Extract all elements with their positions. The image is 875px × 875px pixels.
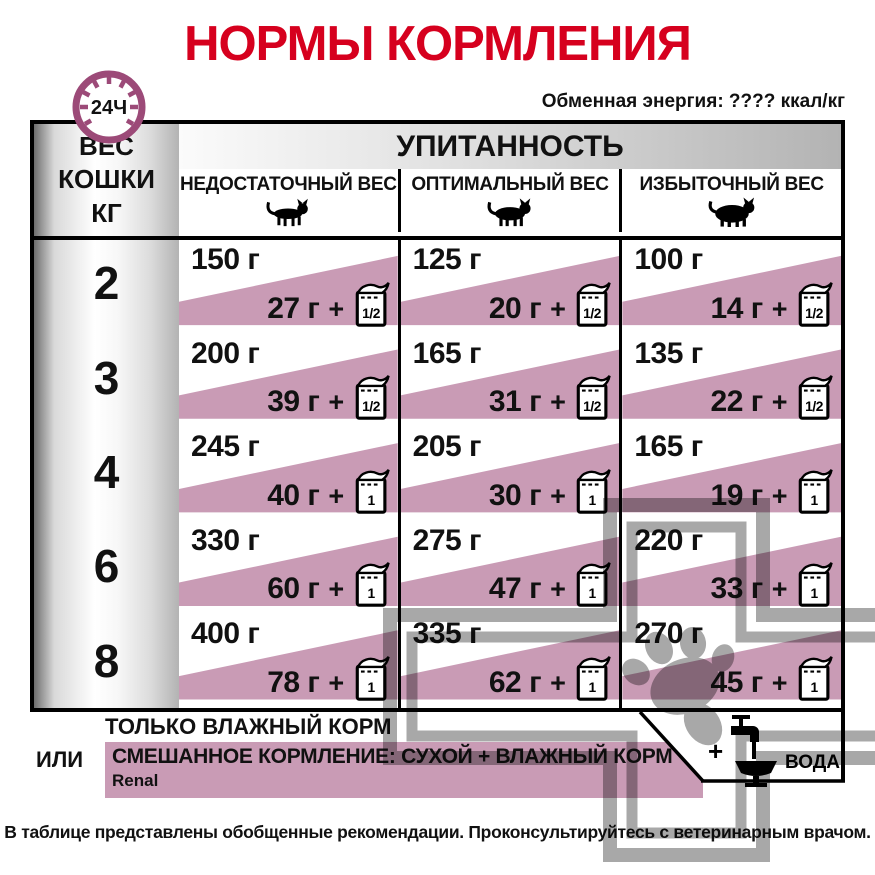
pouch-icon: 1: [796, 561, 834, 607]
column-label: ОПТИМАЛЬНЫЙ ВЕС: [411, 174, 608, 196]
header-divider: [34, 236, 841, 240]
plus-sign: +: [550, 481, 565, 513]
dry-amount: 205 г: [413, 430, 481, 464]
mixed-line: 33 г + 1: [711, 561, 834, 606]
pouch-icon: 1: [574, 655, 612, 701]
weight-value: 8: [34, 614, 179, 708]
pouch-icon: 1: [796, 468, 834, 514]
feeding-cell: 125 г 20 г + 1/2: [398, 240, 620, 334]
mixed-line: 60 г + 1: [267, 561, 390, 606]
mixed-line: 22 г + 1/2: [711, 374, 834, 419]
mixed-line: 19 г + 1: [711, 468, 834, 513]
water-corner: + ВОДА: [635, 712, 845, 807]
plus-sign: +: [328, 574, 343, 606]
feeding-cell: 275 г 47 г + 1: [398, 521, 620, 615]
wet-amount: 39 г: [267, 385, 319, 419]
wet-amount: 40 г: [267, 479, 319, 513]
wet-amount: 45 г: [711, 666, 763, 700]
pouch-icon: 1: [574, 468, 612, 514]
wet-amount: 60 г: [267, 572, 319, 606]
pouch-count: 1: [589, 493, 597, 508]
table-row: 200 г 39 г + 1/2 165 г: [179, 334, 841, 428]
mixed-line: 47 г + 1: [489, 561, 612, 606]
mixed-line: 14 г + 1/2: [711, 281, 834, 326]
column-label: ИЗБЫТОЧНЫЙ ВЕС: [640, 174, 824, 196]
dry-amount: 335 г: [413, 617, 481, 651]
weight-value: 4: [34, 425, 179, 519]
weight-value: 2: [34, 236, 179, 330]
pouch-count: 1/2: [584, 305, 603, 320]
feeding-cell: 335 г 62 г + 1: [398, 614, 620, 708]
plus-sign: +: [550, 668, 565, 700]
dry-amount: 165 г: [413, 337, 481, 371]
metabolic-energy-note: Обменная энергия: ???? ккал/кг: [542, 91, 845, 113]
pouch-icon: 1/2: [796, 374, 834, 420]
wet-amount: 31 г: [489, 385, 541, 419]
column-label: НЕДОСТАТОЧНЫЙ ВЕС: [180, 174, 397, 196]
feeding-cell: 135 г 22 г + 1/2: [619, 334, 841, 428]
pouch-icon: 1/2: [574, 374, 612, 420]
weight-values: 2 3 4 6 8: [34, 236, 179, 708]
table-row: 400 г 78 г + 1 335 г: [179, 614, 841, 708]
thin-cat-icon: [260, 197, 316, 227]
plus-sign: +: [550, 294, 565, 326]
wet-amount: 20 г: [489, 292, 541, 326]
feeding-guide-page: НОРМЫ КОРМЛЕНИЯ Обменная энергия: ???? к…: [0, 0, 875, 875]
pouch-icon: 1: [796, 655, 834, 701]
dry-amount: 330 г: [191, 524, 259, 558]
wet-amount: 62 г: [489, 666, 541, 700]
mixed-line: 30 г + 1: [489, 468, 612, 513]
plus-sign: +: [772, 294, 787, 326]
weight-value: 3: [34, 330, 179, 424]
dry-amount: 270 г: [634, 617, 702, 651]
disclaimer-text: В таблице представлены обобщенные рекоме…: [0, 822, 875, 843]
pouch-count: 1: [810, 586, 818, 601]
wet-amount: 14 г: [711, 292, 763, 326]
feeding-cell: 400 г 78 г + 1: [179, 614, 398, 708]
pouch-count: 1: [367, 586, 375, 601]
pouch-icon: 1: [353, 561, 391, 607]
table-row: 150 г 27 г + 1/2 125 г: [179, 240, 841, 334]
table-rows: 150 г 27 г + 1/2 125 г: [179, 240, 841, 708]
pouch-count: 1/2: [362, 399, 381, 414]
feeding-table: ВЕС КОШКИ КГ 2 3 4 6 8 УПИТАННОСТЬ НЕДОС…: [30, 120, 845, 712]
pouch-count: 1: [589, 680, 597, 695]
clock-label: 24Ч: [91, 97, 127, 119]
dry-amount: 150 г: [191, 243, 259, 277]
column-overweight: ИЗБЫТОЧНЫЙ ВЕС: [619, 169, 841, 232]
plus-sign: +: [328, 668, 343, 700]
clock-24h-icon: 24Ч: [64, 62, 154, 152]
wet-amount: 27 г: [267, 292, 319, 326]
feeding-cell: 200 г 39 г + 1/2: [179, 334, 398, 428]
feeding-cell: 150 г 27 г + 1/2: [179, 240, 398, 334]
mixed-line: 62 г + 1: [489, 655, 612, 700]
plus-sign: +: [772, 574, 787, 606]
table-row: 330 г 60 г + 1 275 г: [179, 521, 841, 615]
mixed-line: 27 г + 1/2: [267, 281, 390, 326]
pouch-icon: 1: [353, 468, 391, 514]
table-row: 245 г 40 г + 1 205 г: [179, 427, 841, 521]
pouch-count: 1/2: [805, 305, 824, 320]
plus-sign: +: [772, 481, 787, 513]
dry-amount: 275 г: [413, 524, 481, 558]
column-headers: НЕДОСТАТОЧНЫЙ ВЕС ОПТИМ: [179, 169, 841, 232]
pouch-count: 1: [367, 493, 375, 508]
weight-value: 6: [34, 519, 179, 613]
feeding-cell: 330 г 60 г + 1: [179, 521, 398, 615]
dry-amount: 165 г: [634, 430, 702, 464]
dry-amount: 245 г: [191, 430, 259, 464]
plus-sign: +: [772, 668, 787, 700]
mixed-line: 39 г + 1/2: [267, 374, 390, 419]
column-underweight: НЕДОСТАТОЧНЫЙ ВЕС: [179, 169, 398, 232]
pouch-icon: 1/2: [574, 281, 612, 327]
plus-sign: +: [550, 387, 565, 419]
mixed-line: 20 г + 1/2: [489, 281, 612, 326]
feeding-cell: 220 г 33 г + 1: [619, 521, 841, 615]
column-optimal: ОПТИМАЛЬНЫЙ ВЕС: [398, 169, 620, 232]
wet-amount: 22 г: [711, 385, 763, 419]
pouch-icon: 1/2: [353, 281, 391, 327]
wet-amount: 33 г: [711, 572, 763, 606]
wet-only-label: ТОЛЬКО ВЛАЖНЫЙ КОРМ: [105, 714, 392, 740]
dry-amount: 400 г: [191, 617, 259, 651]
pouch-count: 1: [810, 493, 818, 508]
feeding-cell: 205 г 30 г + 1: [398, 427, 620, 521]
pouch-count: 1: [810, 680, 818, 695]
dry-amount: 100 г: [634, 243, 702, 277]
pouch-count: 1: [589, 586, 597, 601]
pouch-icon: 1: [574, 561, 612, 607]
or-label: ИЛИ: [36, 747, 83, 773]
feeding-cell: 245 г 40 г + 1: [179, 427, 398, 521]
normal-cat-icon: [482, 197, 538, 227]
plus-sign: +: [772, 387, 787, 419]
mixed-line: 78 г + 1: [267, 655, 390, 700]
feeding-cell: 100 г 14 г + 1/2: [619, 240, 841, 334]
pouch-count: 1/2: [362, 305, 381, 320]
dry-amount: 200 г: [191, 337, 259, 371]
plus-sign: +: [328, 387, 343, 419]
water-label: ВОДА: [785, 752, 840, 773]
pouch-icon: 1/2: [353, 374, 391, 420]
pouch-icon: 1/2: [796, 281, 834, 327]
mixed-line: 31 г + 1/2: [489, 374, 612, 419]
dry-amount: 220 г: [634, 524, 702, 558]
feeding-cell: 165 г 31 г + 1/2: [398, 334, 620, 428]
plus-sign: +: [328, 294, 343, 326]
mixed-line: 45 г + 1: [711, 655, 834, 700]
plus-sign: +: [550, 574, 565, 606]
pouch-count: 1: [367, 680, 375, 695]
pouch-icon: 1: [353, 655, 391, 701]
wet-amount: 19 г: [711, 479, 763, 513]
plus-sign: +: [328, 481, 343, 513]
body-condition-header: УПИТАННОСТЬ: [179, 124, 841, 169]
wet-amount: 78 г: [267, 666, 319, 700]
pouch-count: 1/2: [584, 399, 603, 414]
feeding-cell: 270 г 45 г + 1: [619, 614, 841, 708]
water-plus-sign: +: [708, 736, 723, 766]
pouch-count: 1/2: [805, 399, 824, 414]
fat-cat-icon: [704, 197, 760, 227]
weight-column: ВЕС КОШКИ КГ 2 3 4 6 8: [34, 124, 179, 708]
feeding-cell: 165 г 19 г + 1: [619, 427, 841, 521]
wet-amount: 47 г: [489, 572, 541, 606]
mixed-line: 40 г + 1: [267, 468, 390, 513]
dry-amount: 135 г: [634, 337, 702, 371]
wet-amount: 30 г: [489, 479, 541, 513]
dry-amount: 125 г: [413, 243, 481, 277]
